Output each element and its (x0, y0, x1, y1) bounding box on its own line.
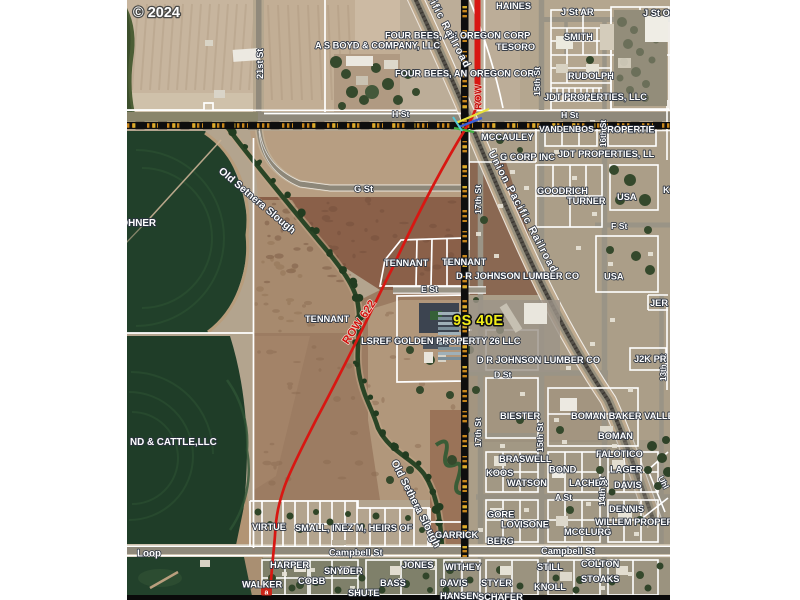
svg-text:WATSON: WATSON (507, 478, 547, 488)
svg-text:A S BOYD & COMPANY, LLC: A S BOYD & COMPANY, LLC (315, 41, 440, 51)
svg-text:DAVIS: DAVIS (440, 578, 468, 588)
svg-text:BOND: BOND (549, 465, 577, 475)
svg-text:JER: JER (650, 298, 668, 308)
svg-text:BRASWELL: BRASWELL (499, 454, 552, 464)
svg-text:17th St: 17th St (473, 185, 483, 214)
svg-text:E St: E St (421, 284, 438, 294)
svg-text:TENNANT: TENNANT (442, 257, 487, 267)
svg-text:STILL: STILL (537, 562, 563, 572)
svg-text:H St: H St (561, 110, 578, 120)
svg-text:FOUR BEES, AN OREGON CORP: FOUR BEES, AN OREGON CORP (395, 69, 540, 79)
svg-text:COLTON: COLTON (581, 559, 620, 569)
svg-text:G St: G St (354, 184, 373, 194)
svg-text:TURNER: TURNER (567, 196, 606, 206)
svg-text:STOAKS: STOAKS (581, 574, 619, 584)
svg-text:BERG: BERG (487, 536, 514, 546)
svg-text:JDT PROPERTIES, LL: JDT PROPERTIES, LL (558, 149, 655, 159)
svg-text:USA: USA (617, 192, 637, 202)
svg-text:TENNANT: TENNANT (384, 258, 429, 268)
svg-text:GARRICK: GARRICK (435, 530, 479, 540)
svg-text:BOMAN BAKER VALLE: BOMAN BAKER VALLE (571, 411, 674, 421)
svg-text:HANSEN: HANSEN (440, 591, 479, 600)
svg-text:F St: F St (611, 221, 628, 231)
svg-text:HAINES: HAINES (496, 1, 531, 11)
svg-text:H St: H St (392, 109, 409, 119)
svg-text:G CORP INC: G CORP INC (500, 152, 555, 162)
svg-text:D R JOHNSON LUMBER CO: D R JOHNSON LUMBER CO (477, 355, 600, 365)
svg-text:VIRTUE: VIRTUE (252, 522, 286, 532)
svg-text:Loop: Loop (137, 549, 161, 560)
svg-text:K: K (663, 185, 670, 195)
svg-text:WALKER: WALKER (242, 580, 282, 590)
svg-text:GORE: GORE (487, 510, 514, 520)
svg-text:SMALL, INEZ M, HEIRS OF: SMALL, INEZ M, HEIRS OF (295, 523, 413, 533)
svg-text:MCCLURG: MCCLURG (564, 527, 611, 537)
svg-text:LAGER: LAGER (610, 465, 643, 475)
svg-text:SMITH: SMITH (564, 32, 593, 42)
svg-text:FALOTICO: FALOTICO (596, 449, 643, 459)
svg-text:TESORO: TESORO (496, 42, 535, 52)
svg-text:SCHAFER: SCHAFER (478, 592, 523, 600)
svg-text:© 2024: © 2024 (133, 5, 180, 21)
svg-text:RUDOLPH: RUDOLPH (568, 71, 614, 81)
svg-text:WITHEY: WITHEY (445, 562, 482, 572)
svg-text:21st St: 21st St (255, 49, 265, 79)
svg-text:SHUTE: SHUTE (348, 588, 379, 598)
svg-text:VANDENBOS: VANDENBOS (539, 124, 594, 134)
svg-text:LOVISONE: LOVISONE (501, 520, 549, 530)
svg-text:KOOS: KOOS (486, 468, 513, 478)
svg-text:GOODRICH: GOODRICH (537, 186, 588, 196)
svg-text:J2K PR: J2K PR (634, 354, 667, 364)
svg-text:MCCAULEY: MCCAULEY (481, 132, 534, 142)
svg-text:ND & CATTLE,LLC: ND & CATTLE,LLC (130, 437, 217, 448)
svg-text:JONES: JONES (402, 560, 433, 570)
svg-text:D St: D St (494, 370, 511, 380)
svg-text:DENNIS: DENNIS (609, 504, 644, 514)
svg-text:Campbell St: Campbell St (329, 548, 383, 558)
svg-text:LSREF GOLDEN PROPERTY 26 LLC: LSREF GOLDEN PROPERTY 26 LLC (361, 336, 521, 346)
svg-text:a: a (265, 590, 269, 597)
svg-text:15th St: 15th St (532, 67, 542, 96)
svg-text:KNOLL: KNOLL (534, 582, 566, 592)
svg-text:A St: A St (555, 492, 572, 502)
svg-text:J St AR: J St AR (561, 7, 594, 17)
svg-text:JDT PROPERTIES, LLC: JDT PROPERTIES, LLC (544, 92, 647, 102)
svg-text:9S 40E: 9S 40E (453, 313, 504, 329)
svg-text:WILLEM PROPER: WILLEM PROPER (595, 517, 674, 527)
svg-text:TENNANT: TENNANT (305, 314, 350, 324)
svg-text:PROPERTIE: PROPERTIE (601, 125, 655, 135)
svg-text:Campbell St: Campbell St (541, 546, 595, 556)
svg-text:BOMAN: BOMAN (598, 431, 633, 441)
svg-text:ROW: ROW (473, 84, 485, 110)
svg-text:BIESTER: BIESTER (500, 411, 540, 421)
svg-text:16th St: 16th St (599, 120, 608, 147)
svg-text:HARPER: HARPER (270, 560, 309, 570)
svg-text:USA: USA (604, 272, 624, 282)
svg-text:17th St: 17th St (473, 418, 483, 447)
svg-text:COBB: COBB (298, 576, 326, 586)
svg-text:STYER: STYER (481, 578, 512, 588)
svg-text:15th St: 15th St (535, 423, 545, 452)
svg-text:SNYDER: SNYDER (324, 566, 363, 576)
svg-text:14th St: 14th St (597, 477, 607, 506)
svg-text:DAVIS: DAVIS (614, 480, 642, 490)
svg-text:D R JOHNSON LUMBER CO: D R JOHNSON LUMBER CO (456, 271, 579, 281)
svg-text:BASS: BASS (380, 578, 406, 588)
